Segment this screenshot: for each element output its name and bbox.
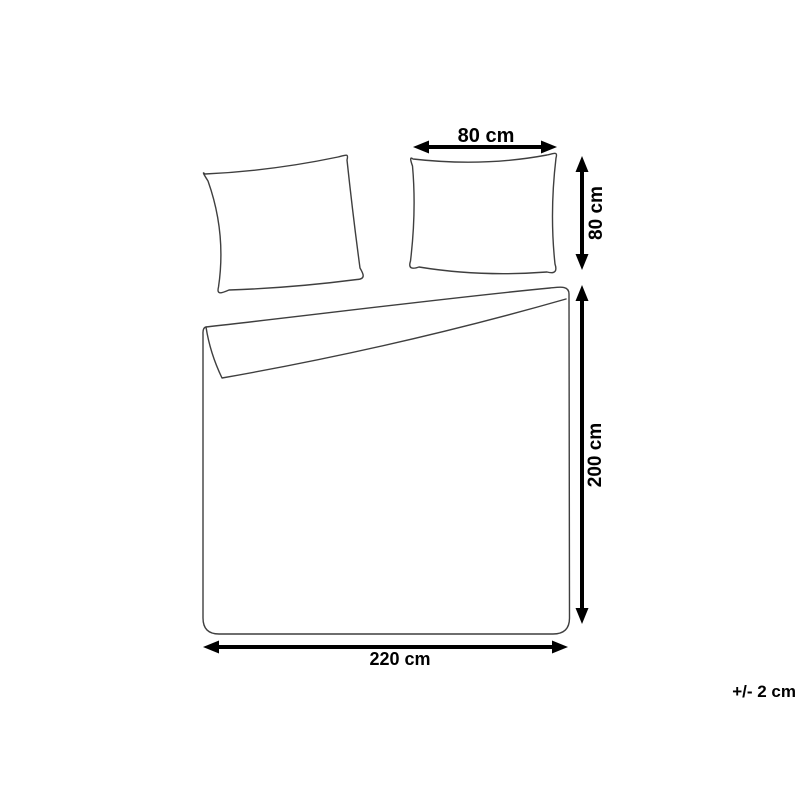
product-shapes <box>203 153 570 634</box>
bedding-dimensions-diagram: 80 cm 80 cm 200 cm 220 cm +/- 2 cm <box>0 0 800 800</box>
right-pillowcase-shape <box>410 153 557 273</box>
duvet-cover-shape <box>203 287 570 634</box>
tolerance-note: +/- 2 cm <box>732 682 796 701</box>
left-pillowcase-shape <box>203 155 363 293</box>
duvet-width-label: 220 cm <box>369 649 430 669</box>
pillow-height-label: 80 cm <box>586 186 607 240</box>
dimension-arrows <box>203 141 589 654</box>
duvet-length-label: 200 cm <box>585 423 606 487</box>
diagram-svg: 80 cm 80 cm 200 cm 220 cm +/- 2 cm <box>0 0 800 800</box>
dimension-arrowheads <box>203 141 589 654</box>
pillow-width-label: 80 cm <box>458 125 515 147</box>
duvet-fold-line <box>206 299 566 378</box>
